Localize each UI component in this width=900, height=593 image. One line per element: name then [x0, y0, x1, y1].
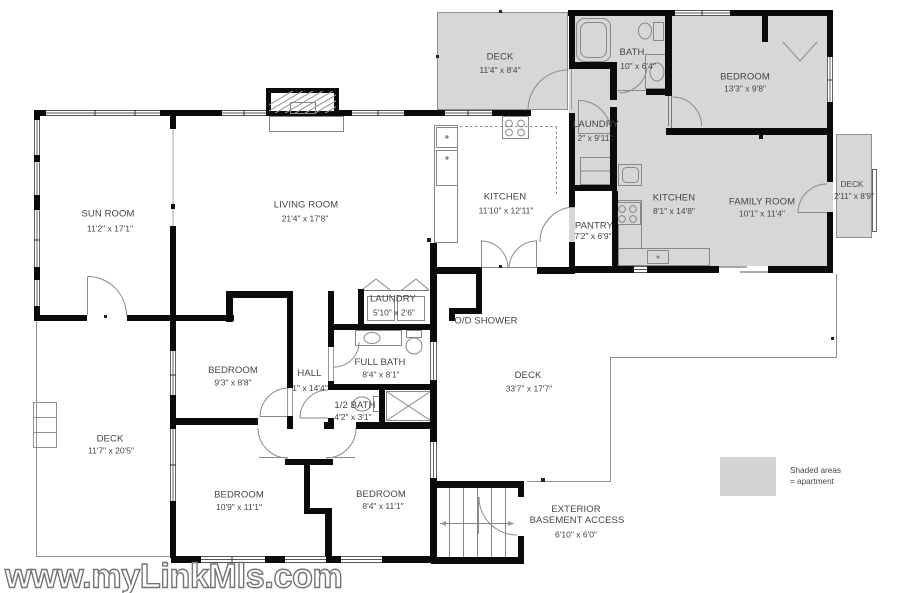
svg-text:8'4" x 11'1": 8'4" x 11'1" — [362, 501, 403, 511]
svg-text:PANTRY: PANTRY — [575, 221, 614, 232]
svg-text:13'3" x 9'8": 13'3" x 9'8" — [724, 84, 766, 94]
svg-text:4'2" x 3'1": 4'2" x 3'1" — [334, 412, 371, 422]
svg-text:LAUNDRY: LAUNDRY — [573, 119, 619, 130]
svg-text:FULL BATH: FULL BATH — [354, 357, 405, 368]
svg-text:KITCHEN: KITCHEN — [484, 192, 526, 203]
svg-text:7'2" x 6'9": 7'2" x 6'9" — [574, 231, 611, 241]
svg-text:9'3" x 8'8": 9'3" x 8'8" — [214, 378, 251, 388]
svg-text:HALL: HALL — [297, 368, 321, 379]
svg-text:10" x 6'4": 10" x 6'4" — [620, 61, 656, 71]
svg-text:33'7" x 17'7": 33'7" x 17'7" — [506, 384, 553, 394]
svg-text:DECK: DECK — [97, 434, 124, 445]
svg-text:BEDROOM: BEDROOM — [356, 489, 406, 500]
svg-text:1/2 BATH: 1/2 BATH — [334, 400, 375, 411]
svg-text:O/D SHOWER: O/D SHOWER — [454, 316, 517, 327]
svg-text:11'2" x 17'1": 11'2" x 17'1" — [87, 224, 133, 234]
svg-text:1" x 14'4": 1" x 14'4" — [292, 383, 328, 393]
svg-text:2'11" x 8'9": 2'11" x 8'9" — [834, 192, 874, 201]
svg-text:BEDROOM: BEDROOM — [720, 72, 770, 83]
svg-text:LAUNDRY: LAUNDRY — [370, 294, 416, 305]
svg-text:21'4" x 17'8": 21'4" x 17'8" — [282, 214, 329, 224]
svg-text:DECK: DECK — [841, 180, 864, 189]
svg-text:KITCHEN: KITCHEN — [653, 193, 695, 204]
svg-text:11'4" x 8'4": 11'4" x 8'4" — [479, 65, 520, 75]
svg-text:8'1" x 14'8": 8'1" x 14'8" — [653, 206, 695, 216]
svg-text:SUN ROOM: SUN ROOM — [81, 209, 134, 220]
svg-text:6'10" x 6'0": 6'10" x 6'0" — [555, 530, 597, 540]
svg-text:BEDROOM: BEDROOM — [214, 490, 264, 501]
svg-text:11'7" x 20'5": 11'7" x 20'5" — [88, 446, 134, 456]
svg-text:11'10" x 12'11": 11'10" x 12'11" — [479, 206, 534, 216]
svg-text:10'9" x 11'1": 10'9" x 11'1" — [216, 502, 262, 512]
svg-text:= apartment: = apartment — [790, 477, 835, 486]
svg-text:BEDROOM: BEDROOM — [208, 365, 258, 376]
svg-text:DECK: DECK — [487, 52, 514, 63]
svg-text:5'10" x 2'6": 5'10" x 2'6" — [373, 308, 415, 318]
svg-text:2" x 9'11": 2" x 9'11" — [578, 133, 613, 143]
svg-text:LIVING ROOM: LIVING ROOM — [274, 200, 338, 211]
svg-text:FAMILY ROOM: FAMILY ROOM — [729, 197, 795, 208]
svg-text:DECK: DECK — [515, 370, 542, 381]
svg-text:BATH: BATH — [619, 47, 644, 58]
svg-text:EXTERIOR: EXTERIOR — [551, 504, 600, 515]
svg-text:BASEMENT ACCESS: BASEMENT ACCESS — [530, 515, 625, 526]
svg-text:10'1" x 11'4": 10'1" x 11'4" — [739, 209, 785, 219]
svg-text:Shaded areas: Shaded areas — [790, 466, 841, 475]
svg-text:8'4" x 8'1": 8'4" x 8'1" — [362, 370, 399, 380]
svg-text:www.myLinkMls.com: www.myLinkMls.com — [4, 558, 343, 593]
